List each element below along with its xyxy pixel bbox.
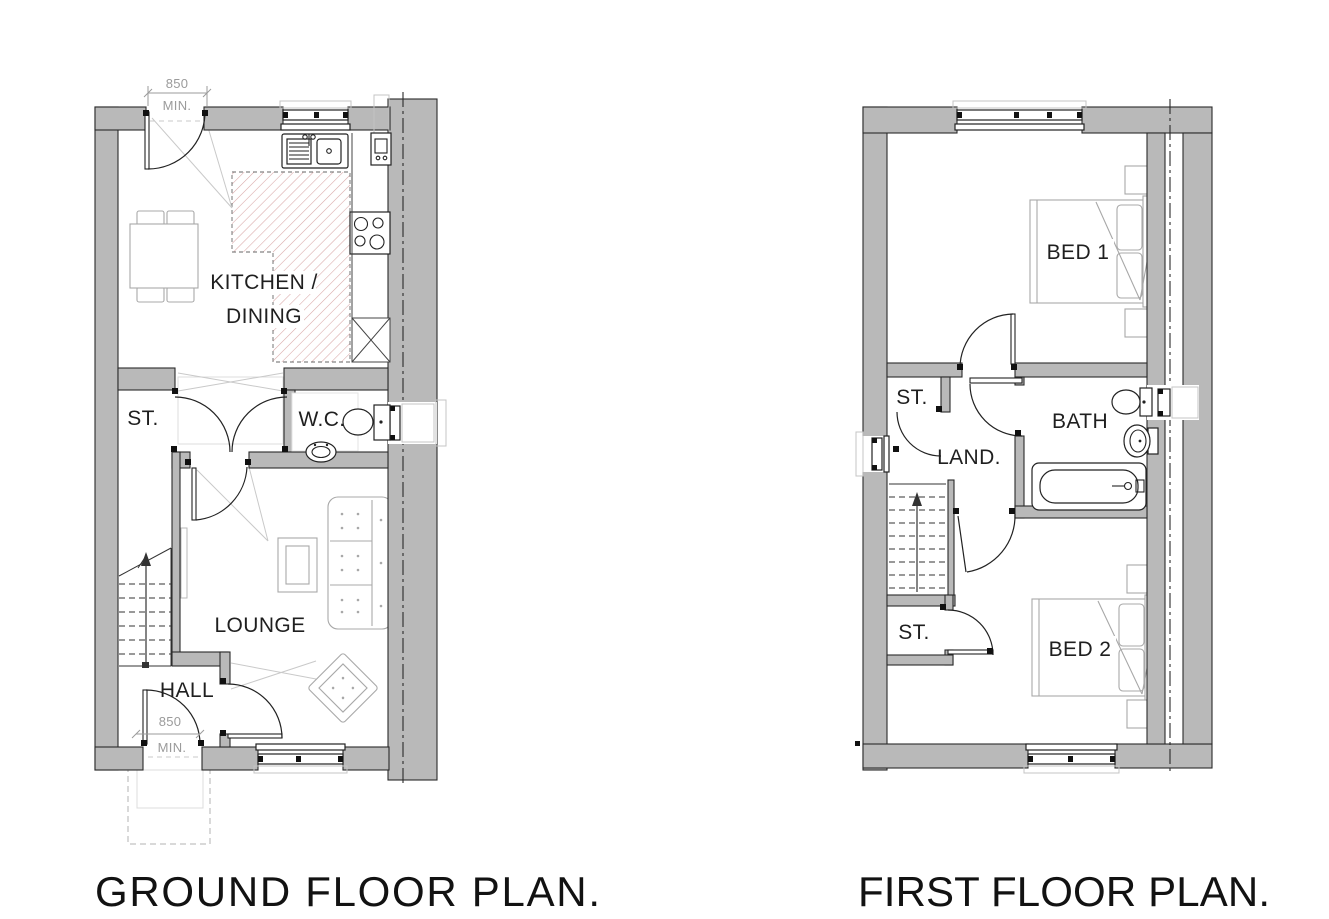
floor-plan-sheet: 850 MIN. 850 MIN. KITCHEN / DINING ST. W… [0, 0, 1329, 919]
ground-floor-title: GROUND FLOOR PLAN. [95, 868, 600, 915]
ground-floor-plan: 850 MIN. 850 MIN. KITCHEN / DINING ST. W… [95, 76, 446, 844]
bath-window [1147, 385, 1199, 420]
room-label-bed1: BED 1 [1047, 241, 1110, 264]
room-label-hall: HALL [160, 679, 214, 702]
dim-back-door-qualifier: MIN. [163, 98, 192, 113]
kitchen-window [280, 101, 351, 130]
bed1-door [957, 314, 1017, 370]
bed2-window [1024, 744, 1119, 773]
room-label-store-upper: ST. [896, 386, 928, 409]
floor-plan-drawing: 850 MIN. 850 MIN. KITCHEN / DINING ST. W… [0, 0, 1329, 919]
stairs-first [889, 484, 946, 592]
store-upper-door [893, 406, 942, 456]
dimension-back-door: 850 MIN. [144, 76, 211, 113]
dim-front-door-value: 850 [159, 714, 182, 729]
dining-table [130, 211, 198, 302]
first-floor-plan: BED 1 ST. LAND. BATH ST. BED 2 [855, 99, 1212, 775]
toilet-icon [1112, 388, 1152, 416]
bath-door [970, 378, 1022, 436]
corner-marker [855, 741, 860, 746]
room-label-kitchen-line1: KITCHEN / [210, 271, 317, 294]
hall-door [220, 678, 282, 738]
dim-back-door-value: 850 [166, 76, 189, 91]
basin-icon [1124, 425, 1158, 457]
bathtub-icon [1032, 463, 1146, 510]
bed1-window [953, 101, 1086, 130]
landing-window [856, 432, 889, 476]
stair-balustrade [948, 480, 954, 595]
room-label-lounge: LOUNGE [214, 614, 305, 637]
room-label-bed2: BED 2 [1049, 638, 1112, 661]
room-label-wc: W.C. [298, 408, 345, 431]
basin-icon [306, 442, 336, 462]
kitchen-sink [282, 134, 348, 168]
room-label-landing: LAND. [937, 446, 1001, 469]
lounge-window [254, 744, 347, 773]
lobby-double-doors [171, 388, 288, 452]
room-label-kitchen-line2: DINING [226, 305, 302, 328]
store-lower-door [940, 604, 993, 655]
sofa [328, 497, 392, 629]
bath-fixtures [1032, 388, 1158, 510]
bed2-door [953, 508, 1015, 572]
hob [350, 212, 390, 254]
tv-unit [181, 528, 187, 598]
room-label-store-lower: ST. [898, 621, 930, 644]
dim-front-door-qualifier: MIN. [158, 740, 187, 755]
kitchen-hatch-area [232, 172, 350, 362]
coffee-table [278, 538, 317, 592]
room-label-bath: BATH [1052, 410, 1108, 433]
first-floor-title: FIRST FLOOR PLAN. [858, 868, 1270, 915]
stairs-ground [119, 548, 171, 668]
lounge-door [185, 459, 251, 520]
armchair [308, 653, 379, 724]
porch-outline [128, 770, 210, 844]
room-label-store-ground: ST. [127, 407, 159, 430]
